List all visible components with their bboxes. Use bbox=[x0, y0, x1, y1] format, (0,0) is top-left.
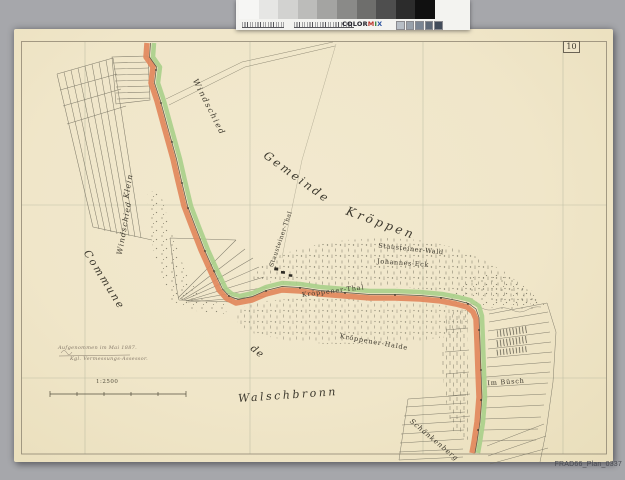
gray-patch bbox=[278, 0, 298, 19]
color-chip bbox=[406, 21, 415, 30]
map-paper bbox=[14, 29, 613, 462]
colormix-label: COLORMIX bbox=[342, 20, 382, 29]
gray-patch bbox=[337, 0, 357, 19]
color-chip bbox=[425, 21, 434, 30]
color-chip bbox=[415, 21, 424, 30]
sheet-number-badge: 10 bbox=[563, 41, 580, 53]
color-chip bbox=[396, 21, 405, 30]
gray-patch bbox=[357, 0, 377, 19]
color-chips bbox=[396, 21, 443, 30]
gray-patch bbox=[239, 0, 259, 19]
color-calibration-strip: COLORMIX bbox=[236, 0, 470, 30]
gray-patch bbox=[415, 0, 435, 19]
color-chip bbox=[434, 21, 443, 30]
gray-patch bbox=[396, 0, 416, 19]
gray-patch bbox=[317, 0, 337, 19]
gray-patch bbox=[376, 0, 396, 19]
scanned-map-sheet: Aufgenommen im Mai 1887. Kgl. Vermessung… bbox=[0, 0, 625, 480]
calibration-ruler bbox=[242, 22, 284, 28]
gray-patch bbox=[298, 0, 318, 19]
colormix-letter: X bbox=[377, 20, 382, 28]
grayscale-patches bbox=[239, 0, 435, 19]
archive-reference: FRAD66_Plan_0337 bbox=[555, 461, 622, 468]
gray-patch bbox=[259, 0, 279, 19]
